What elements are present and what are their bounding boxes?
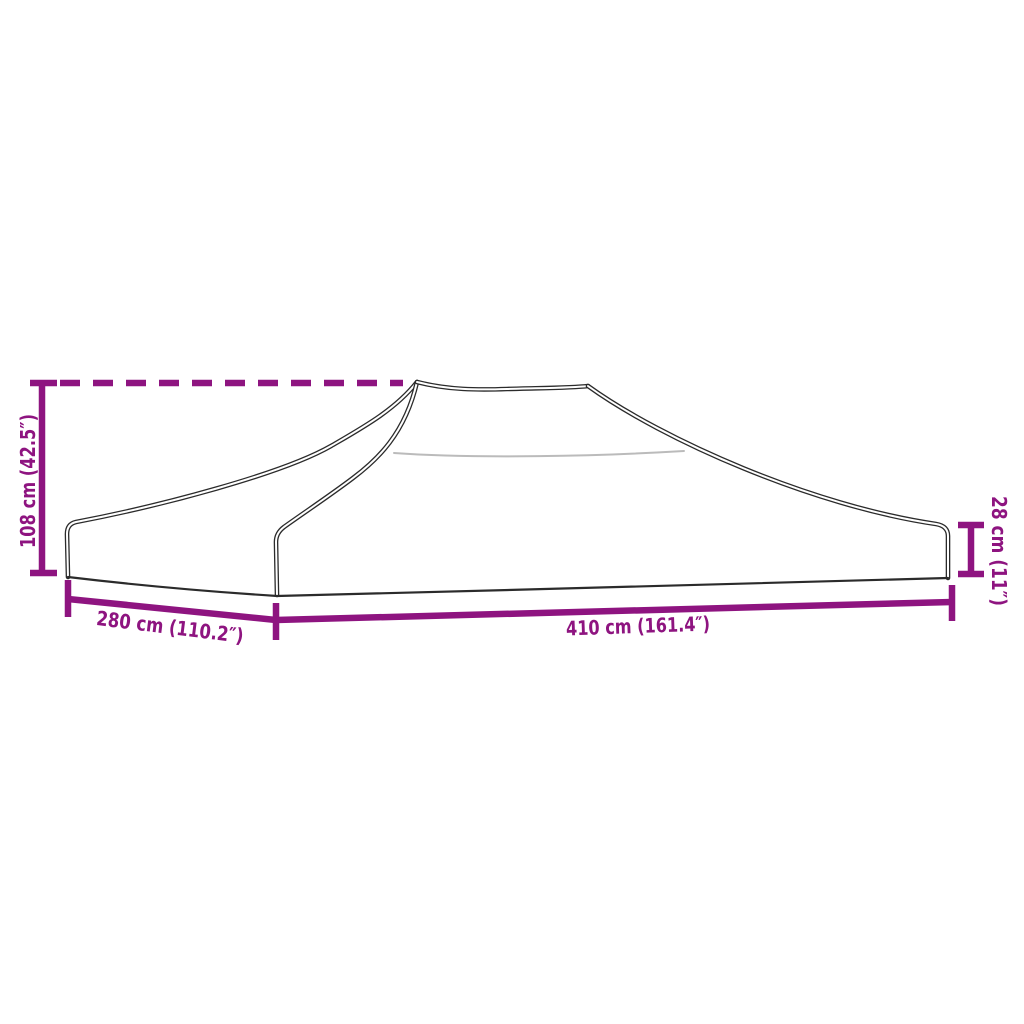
height-dimension-label: 108 cm (42.5″) [16,414,40,548]
canopy-ridge-hem [417,382,588,389]
valance-height-dimension: 28 cm (11″) [958,496,1011,606]
canopy-dimension-diagram: 108 cm (42.5″) 280 cm (110.2″) 410 cm (1… [0,0,1024,1024]
canopy-right-slope-hem [588,386,948,578]
canopy-front-left-hem [276,382,417,595]
canopy-valance-seam [394,451,684,456]
valance-height-dimension-label: 28 cm (11″) [987,496,1011,606]
canopy-bottom-edge [68,577,948,596]
canopy-back-left-hem [67,382,417,577]
front-width-dimension-label: 410 cm (161.4″) [566,611,711,640]
height-dimension: 108 cm (42.5″) [16,383,403,573]
side-width-dimension: 280 cm (110.2″) [68,580,276,648]
canopy-outline [67,382,948,596]
